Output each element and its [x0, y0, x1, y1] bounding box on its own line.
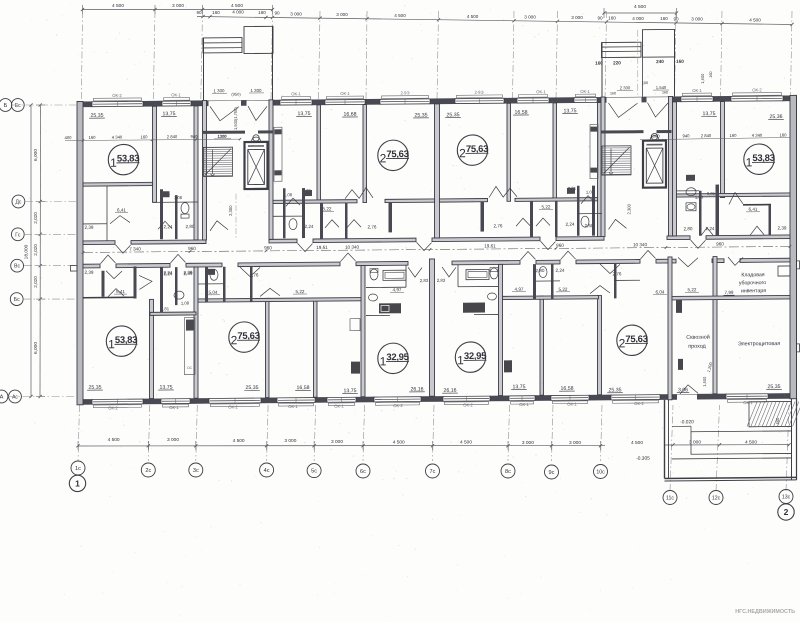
svg-text:2 840: 2 840 — [701, 133, 712, 138]
svg-text:6,000: 6,000 — [33, 342, 39, 354]
svg-text:Сквозной: Сквозной — [686, 334, 709, 341]
svg-text:Дс: Дс — [15, 200, 21, 206]
svg-text:3 000: 3 000 — [331, 439, 343, 445]
svg-text:4 000: 4 000 — [632, 16, 644, 21]
svg-text:4 500: 4 500 — [393, 440, 405, 446]
svg-text:ОК-2: ОК-2 — [463, 402, 473, 407]
svg-text:4,97: 4,97 — [393, 287, 402, 292]
svg-text:4 500: 4 500 — [108, 437, 120, 443]
svg-text:19,61: 19,61 — [316, 245, 328, 250]
svg-text:960: 960 — [556, 243, 564, 248]
svg-text:3 000: 3 000 — [691, 17, 703, 22]
svg-text:10 340: 10 340 — [633, 242, 647, 247]
svg-text:ОК-1: ОК-1 — [519, 402, 529, 407]
svg-text:100: 100 — [642, 81, 648, 85]
svg-text:220: 220 — [613, 60, 621, 65]
svg-text:940: 940 — [683, 133, 691, 138]
svg-text:2,020: 2,020 — [33, 276, 38, 288]
svg-text:10с: 10с — [596, 470, 605, 476]
svg-text:ОК-2: ОК-2 — [228, 404, 238, 409]
svg-text:12с: 12с — [712, 496, 721, 502]
svg-text:инвентаря: инвентаря — [741, 288, 766, 294]
svg-text:2,39: 2,39 — [184, 271, 193, 276]
svg-text:НГС.НЕДВИЖИМОСТЬ: НГС.НЕДВИЖИМОСТЬ — [735, 609, 795, 615]
svg-text:4 500: 4 500 — [233, 438, 245, 444]
svg-text:1с: 1с — [75, 466, 81, 472]
svg-text:240: 240 — [656, 59, 664, 64]
svg-text:5,22: 5,22 — [542, 204, 551, 209]
svg-text:90: 90 — [274, 10, 280, 15]
svg-text:19,61: 19,61 — [484, 243, 496, 248]
svg-text:4 340: 4 340 — [752, 133, 763, 138]
svg-text:160: 160 — [258, 10, 266, 15]
svg-text:2,300: 2,300 — [627, 203, 632, 214]
svg-text:10 340: 10 340 — [345, 245, 359, 250]
svg-text:600: 600 — [775, 417, 780, 424]
svg-text:2,020: 2,020 — [33, 212, 38, 224]
svg-text:4 500: 4 500 — [112, 3, 124, 9]
svg-text:4 500: 4 500 — [749, 18, 761, 23]
svg-text:А: А — [0, 395, 4, 401]
svg-text:2-9Э: 2-9Э — [400, 90, 409, 95]
svg-text:Б: Б — [4, 103, 8, 109]
svg-text:2,39: 2,39 — [85, 270, 94, 275]
svg-text:4 500: 4 500 — [745, 440, 757, 446]
svg-text:2,83: 2,83 — [437, 278, 446, 283]
svg-text:4 500: 4 500 — [631, 440, 643, 446]
svg-text:ОК-2: ОК-2 — [393, 403, 403, 408]
svg-text:13с: 13с — [782, 495, 791, 501]
svg-text:0,81: 0,81 — [707, 191, 716, 196]
svg-text:6,41: 6,41 — [117, 208, 126, 213]
svg-text:1,600: 1,600 — [700, 73, 705, 84]
svg-text:4 500: 4 500 — [460, 440, 472, 446]
svg-text:ОК-2: ОК-2 — [108, 405, 118, 410]
svg-text:7с: 7с — [430, 469, 436, 475]
svg-text:4 500: 4 500 — [231, 3, 243, 9]
svg-text:ОК-2: ОК-2 — [112, 93, 122, 98]
svg-text:4 500: 4 500 — [467, 14, 479, 19]
svg-text:Вс: Вс — [14, 264, 20, 270]
svg-text:9с: 9с — [549, 470, 555, 476]
svg-text:7,99: 7,99 — [725, 290, 734, 295]
svg-text:160: 160 — [141, 134, 149, 139]
svg-text:160: 160 — [608, 16, 616, 21]
svg-text:ОК-1: ОК-1 — [536, 89, 546, 94]
svg-text:2,76: 2,76 — [613, 271, 622, 276]
svg-text:проход: проход — [688, 344, 706, 350]
svg-text:3 000: 3 000 — [336, 12, 348, 17]
svg-text:3 000: 3 000 — [522, 440, 534, 446]
svg-text:400: 400 — [65, 135, 73, 140]
svg-text:18,000: 18,000 — [24, 244, 30, 259]
svg-text:4 340: 4 340 — [112, 135, 123, 140]
svg-text:-0.020: -0.020 — [680, 419, 694, 425]
svg-text:2,80: 2,80 — [536, 268, 545, 273]
svg-text:2с: 2с — [145, 468, 151, 474]
svg-text:2,80: 2,80 — [684, 226, 693, 231]
svg-text:ОК-1: ОК-1 — [291, 91, 301, 96]
svg-text:ОК-1: ОК-1 — [580, 89, 590, 94]
svg-text:2,300: 2,300 — [228, 205, 233, 216]
svg-text:3 000: 3 000 — [290, 11, 302, 16]
svg-text:ОК-1: ОК-1 — [171, 92, 181, 97]
svg-text:-0.305: -0.305 — [636, 456, 650, 462]
svg-text:ОК-1: ОК-1 — [692, 88, 702, 93]
svg-text:2-9Э: 2-9Э — [474, 90, 483, 95]
svg-text:1 300: 1 300 — [251, 88, 263, 93]
svg-text:1,500: 1,500 — [702, 376, 707, 387]
svg-text:2,24: 2,24 — [556, 268, 565, 273]
svg-text:2,39: 2,39 — [85, 225, 94, 230]
svg-text:2,76: 2,76 — [494, 223, 503, 228]
svg-text:5,04: 5,04 — [209, 290, 218, 295]
svg-text:90: 90 — [673, 16, 679, 21]
svg-text:3 000: 3 000 — [569, 440, 581, 446]
svg-text:4с: 4с — [264, 468, 270, 474]
svg-text:6,41: 6,41 — [749, 207, 758, 212]
svg-text:3 000: 3 000 — [284, 438, 296, 444]
svg-text:160: 160 — [595, 61, 603, 66]
svg-text:2: 2 — [784, 507, 789, 517]
svg-text:1300: 1300 — [217, 134, 227, 139]
svg-text:5с: 5с — [311, 469, 317, 475]
svg-text:уборочного: уборочного — [739, 280, 766, 286]
svg-text:Ас: Ас — [12, 395, 18, 401]
svg-text:5,22: 5,22 — [688, 287, 697, 292]
svg-text:ОК-1: ОК-1 — [743, 400, 753, 405]
svg-text:ОК-1: ОК-1 — [567, 402, 577, 407]
svg-text:Электрощитовая: Электрощитовая — [738, 341, 780, 347]
svg-text:Ес: Ес — [15, 103, 21, 109]
svg-text:1: 1 — [75, 478, 80, 488]
svg-text:160: 160 — [780, 132, 788, 137]
svg-text:3 000: 3 000 — [167, 437, 179, 443]
svg-text:2,76: 2,76 — [368, 224, 377, 229]
svg-text:2,39: 2,39 — [778, 225, 787, 230]
svg-text:7 340: 7 340 — [129, 246, 141, 251]
svg-text:11с: 11с — [666, 496, 674, 502]
svg-text:1,540: 1,540 — [656, 85, 667, 90]
svg-text:2,83: 2,83 — [420, 278, 429, 283]
svg-text:ОК-1: ОК-1 — [340, 91, 350, 96]
svg-text:960: 960 — [716, 241, 724, 246]
svg-text:Бс: Бс — [14, 297, 20, 303]
svg-text:3с: 3с — [193, 468, 199, 474]
svg-text:2,24: 2,24 — [706, 226, 715, 231]
svg-text:2 840: 2 840 — [167, 134, 178, 139]
svg-text:2,80: 2,80 — [186, 224, 195, 229]
svg-text:160: 160 — [676, 59, 684, 64]
svg-text:4,97: 4,97 — [515, 287, 524, 292]
svg-text:2,24: 2,24 — [305, 224, 314, 229]
svg-text:160: 160 — [660, 16, 668, 21]
svg-text:Гс: Гс — [15, 232, 21, 238]
svg-text:ОК-2: ОК-2 — [752, 87, 762, 92]
svg-text:160: 160 — [662, 90, 668, 94]
svg-text:8с: 8с — [505, 469, 511, 475]
svg-text:2,24: 2,24 — [164, 271, 173, 276]
svg-text:ОК-1: ОК-1 — [288, 404, 298, 409]
svg-text:ОК-1: ОК-1 — [334, 404, 344, 409]
svg-text:160: 160 — [212, 10, 220, 15]
svg-text:3 000: 3 000 — [172, 3, 184, 9]
svg-text:2 300: 2 300 — [620, 85, 631, 90]
svg-text:1,500(1,750): 1,500(1,750) — [233, 107, 238, 130]
svg-text:5,22: 5,22 — [296, 289, 305, 294]
svg-text:960: 960 — [188, 246, 196, 251]
svg-text:1,08: 1,08 — [181, 301, 190, 306]
svg-text:(950): (950) — [231, 92, 241, 97]
svg-text:160: 160 — [610, 91, 616, 95]
svg-text:960: 960 — [264, 245, 272, 250]
svg-text:2,020: 2,020 — [33, 244, 38, 256]
svg-text:Кладовая: Кладовая — [741, 272, 764, 278]
svg-text:90: 90 — [196, 10, 202, 15]
svg-text:4 500: 4 500 — [394, 13, 406, 18]
svg-text:1300: 1300 — [650, 134, 660, 139]
svg-text:160: 160 — [709, 71, 713, 77]
svg-text:ОК-2: ОК-2 — [634, 401, 644, 406]
svg-text:3 000: 3 000 — [571, 15, 583, 20]
svg-text:4 000: 4 000 — [232, 9, 244, 14]
svg-text:2,24: 2,24 — [566, 222, 575, 227]
svg-text:5,22: 5,22 — [559, 287, 568, 292]
svg-text:160: 160 — [730, 133, 738, 138]
svg-text:1 300: 1 300 — [214, 88, 226, 93]
svg-text:160: 160 — [89, 135, 97, 140]
svg-text:ОК-1: ОК-1 — [169, 405, 179, 410]
svg-text:5,22: 5,22 — [323, 206, 332, 211]
svg-text:6с: 6с — [360, 469, 366, 475]
svg-text:4 500: 4 500 — [634, 4, 646, 10]
svg-text:6,000: 6,000 — [33, 149, 39, 161]
svg-text:ОС: ОС — [187, 366, 193, 370]
